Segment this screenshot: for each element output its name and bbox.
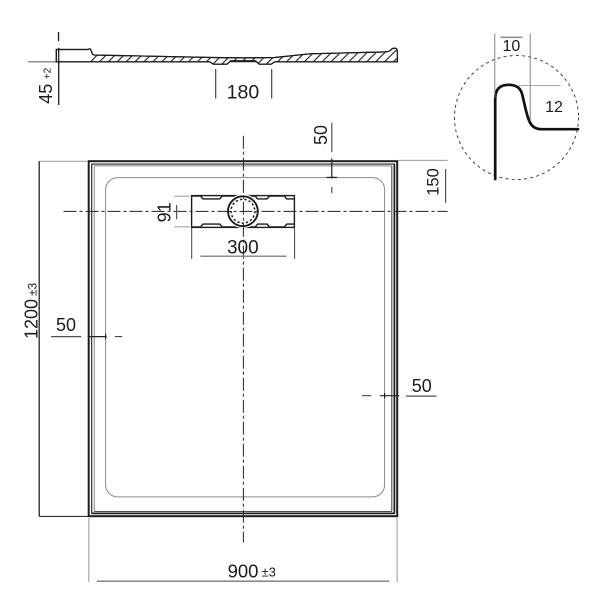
svg-text:50: 50	[311, 125, 331, 145]
svg-text:12: 12	[545, 99, 563, 116]
svg-text:±3: ±3	[25, 283, 39, 297]
svg-text:300: 300	[227, 238, 259, 259]
svg-text:50: 50	[56, 315, 76, 335]
svg-text:±3: ±3	[262, 565, 276, 580]
svg-text:180: 180	[227, 82, 260, 104]
svg-text:45: 45	[36, 84, 56, 104]
svg-text:1200: 1200	[21, 299, 41, 339]
svg-text:150: 150	[425, 168, 443, 196]
svg-text:10: 10	[503, 38, 521, 55]
svg-text:900: 900	[228, 561, 259, 582]
svg-text:+2: +2	[43, 67, 54, 79]
svg-text:91: 91	[155, 202, 175, 222]
svg-text:50: 50	[412, 376, 432, 396]
